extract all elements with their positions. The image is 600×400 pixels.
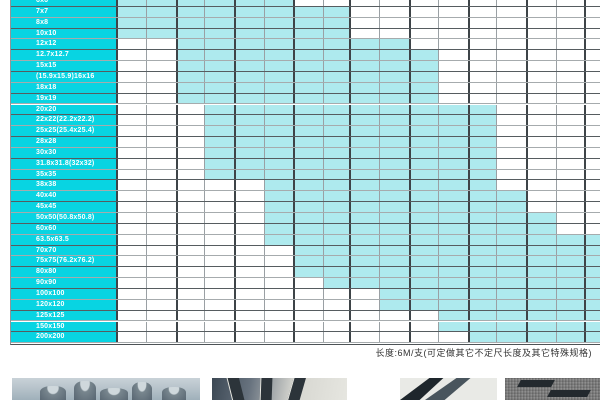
grid-cell (204, 180, 234, 190)
grid-cell (234, 332, 264, 342)
grid-cell (584, 170, 600, 180)
grid-cell (323, 213, 349, 223)
grid-cell (526, 289, 556, 299)
grid-cell (293, 94, 323, 104)
table-row: 100x100 (11, 289, 600, 300)
grid-cell (468, 322, 496, 332)
grid-cell (584, 180, 600, 190)
grid-cell (234, 137, 264, 147)
table-row: 7x7 (11, 7, 600, 18)
grid-cell (556, 246, 584, 256)
grid-cell (349, 105, 379, 115)
grid-cell (438, 322, 468, 332)
grid-cell (264, 170, 293, 180)
grid-cell (204, 115, 234, 125)
grid-cell (293, 267, 323, 277)
grid-cell (379, 50, 409, 60)
grid-cell (176, 137, 204, 147)
grid-cell (496, 246, 526, 256)
grid-cell (349, 289, 379, 299)
grid-cell (293, 246, 323, 256)
grid-cell (204, 0, 234, 6)
grid-cell (116, 137, 146, 147)
grid-cell (176, 224, 204, 234)
grid-cell (468, 213, 496, 223)
grid-cell (468, 332, 496, 342)
grid-cell (496, 50, 526, 60)
grid-cell (526, 246, 556, 256)
grid-cell (379, 170, 409, 180)
grid-cell (526, 311, 556, 321)
grid-cell (379, 300, 409, 310)
grid-cell (323, 29, 349, 39)
grid-cell (584, 148, 600, 158)
grid-cell (438, 180, 468, 190)
table-row: 150x150 (11, 322, 600, 333)
grid-cell (204, 50, 234, 60)
grid-cell (234, 83, 264, 93)
grid-cell (146, 126, 176, 136)
grid-cell (234, 0, 264, 6)
grid-cell (116, 289, 146, 299)
grid-cell (584, 278, 600, 288)
table-row: 120x120 (11, 300, 600, 311)
grid-cell (116, 7, 146, 17)
grid-cell (176, 235, 204, 245)
grid-cell (556, 235, 584, 245)
grid-cell (409, 126, 438, 136)
grid-cell (468, 278, 496, 288)
grid-cell (438, 126, 468, 136)
grid-cell (293, 18, 323, 28)
grid-cell (349, 224, 379, 234)
grid-cell (176, 0, 204, 6)
grid-cell (264, 311, 293, 321)
grid-cell (204, 61, 234, 71)
grid-cell (438, 311, 468, 321)
grid-cell (556, 7, 584, 17)
grid-cell (409, 50, 438, 60)
grid-cell (584, 105, 600, 115)
row-label: 70x70 (11, 246, 116, 256)
grid-cell (204, 148, 234, 158)
grid-cell (349, 115, 379, 125)
grid-cell (204, 332, 234, 342)
grid-cell (556, 267, 584, 277)
grid-cell (323, 0, 349, 6)
grid-cell (526, 213, 556, 223)
grid-cell (409, 105, 438, 115)
grid-cell (468, 256, 496, 266)
row-label: 90x90 (11, 278, 116, 288)
table-row: 22x22(22.2x22.2) (11, 115, 600, 126)
row-label: 20x20 (11, 105, 116, 115)
grid-cell (584, 332, 600, 342)
grid-cell (379, 322, 409, 332)
grid-cell (438, 191, 468, 201)
table-row: 35x35 (11, 170, 600, 181)
grid-cell (204, 278, 234, 288)
grid-cell (349, 180, 379, 190)
grid-cell (264, 322, 293, 332)
grid-cell (584, 50, 600, 60)
table-row: 18x18 (11, 83, 600, 94)
grid-cell (379, 148, 409, 158)
grid-cell (438, 300, 468, 310)
grid-cell (349, 311, 379, 321)
grid-cell (379, 83, 409, 93)
catalog-page: 6x67x78x810x1012x1212.7x12.715x15(15.9x1… (0, 0, 600, 400)
grid-cell (379, 115, 409, 125)
row-label: 8x8 (11, 18, 116, 28)
table-row: 12x12 (11, 39, 600, 50)
grid-cell (234, 148, 264, 158)
cylinder-shape (40, 386, 66, 400)
grid-cell (323, 94, 349, 104)
grid-cell (146, 191, 176, 201)
grid-cell (323, 332, 349, 342)
grid-cell (323, 278, 349, 288)
grid-cell (293, 322, 323, 332)
grid-cell (293, 191, 323, 201)
grid-cell (409, 83, 438, 93)
grid-cell (146, 61, 176, 71)
grid-cell (584, 29, 600, 39)
grid-cell (468, 159, 496, 169)
grid-cell (204, 18, 234, 28)
table-row: 8x8 (11, 18, 600, 29)
size-table: 6x67x78x810x1012x1212.7x12.715x15(15.9x1… (10, 0, 600, 345)
row-label: 200x200 (11, 332, 116, 342)
row-label: 45x45 (11, 202, 116, 212)
grid-cell (146, 18, 176, 28)
grid-cell (176, 246, 204, 256)
grid-cell (526, 7, 556, 17)
grid-cell (204, 202, 234, 212)
grid-cell (234, 213, 264, 223)
grid-cell (379, 137, 409, 147)
grid-cell (204, 191, 234, 201)
grid-cell (556, 202, 584, 212)
grid-cell (496, 332, 526, 342)
grid-cell (556, 61, 584, 71)
grid-cell (234, 72, 264, 82)
grid-cell (323, 224, 349, 234)
grid-cell (409, 235, 438, 245)
row-label: 12x12 (11, 39, 116, 49)
photo-round-steel-billets (12, 378, 200, 400)
grid-cell (116, 61, 146, 71)
grid-cell (438, 224, 468, 234)
grid-cell (204, 256, 234, 266)
grid-cell (116, 213, 146, 223)
row-label: 125x125 (11, 311, 116, 321)
grid-cell (204, 137, 234, 147)
grid-cell (116, 235, 146, 245)
grid-cell (264, 61, 293, 71)
grid-cell (584, 191, 600, 201)
grid-cell (409, 191, 438, 201)
grid-cell (264, 83, 293, 93)
grid-cell (526, 50, 556, 60)
grid-cell (323, 7, 349, 17)
grid-cell (379, 191, 409, 201)
grid-cell (176, 7, 204, 17)
grid-cell (556, 322, 584, 332)
grid-cell (556, 213, 584, 223)
table-row: 90x90 (11, 278, 600, 289)
grid-cell (234, 267, 264, 277)
photo-angle-steel-profile (400, 378, 497, 400)
grid-cell (116, 224, 146, 234)
grid-cell (204, 300, 234, 310)
grid-cell (556, 29, 584, 39)
grid-cell (438, 29, 468, 39)
grid-cell (584, 61, 600, 71)
grid-cell (264, 148, 293, 158)
grid-cell (438, 213, 468, 223)
table-row: 19x19 (11, 94, 600, 105)
table-row: 40x40 (11, 191, 600, 202)
row-label: 38x38 (11, 180, 116, 190)
grid-cell (234, 105, 264, 115)
grid-cell (468, 224, 496, 234)
table-row: 200x200 (11, 332, 600, 343)
grid-cell (146, 72, 176, 82)
length-note: 长度:6M/支(可定做其它不定尺长度及其它特殊规格) (376, 346, 593, 359)
grid-cell (204, 39, 234, 49)
grid-cell (349, 7, 379, 17)
grid-cell (116, 39, 146, 49)
grid-cell (176, 289, 204, 299)
grid-cell (176, 180, 204, 190)
grid-cell (349, 18, 379, 28)
grid-cell (176, 50, 204, 60)
grid-cell (584, 289, 600, 299)
grid-cell (409, 322, 438, 332)
grid-cell (496, 235, 526, 245)
grid-cell (556, 289, 584, 299)
grid-cell (116, 267, 146, 277)
cylinder-shape (100, 388, 128, 400)
grid-cell (176, 159, 204, 169)
grid-cell (204, 224, 234, 234)
grid-cell (116, 50, 146, 60)
grid-cell (176, 322, 204, 332)
grid-cell (234, 94, 264, 104)
grid-cell (116, 311, 146, 321)
grid-cell (323, 235, 349, 245)
grid-cell (526, 18, 556, 28)
grid-cell (409, 224, 438, 234)
row-label: 150x150 (11, 322, 116, 332)
grid-cell (264, 224, 293, 234)
grid-cell (468, 105, 496, 115)
grid-cell (379, 159, 409, 169)
grid-cell (526, 94, 556, 104)
grid-cell (496, 289, 526, 299)
grid-cell (204, 7, 234, 17)
grid-cell (293, 311, 323, 321)
grid-cell (526, 29, 556, 39)
grid-cell (349, 170, 379, 180)
grid-cell (526, 170, 556, 180)
grid-cell (176, 170, 204, 180)
grid-cell (234, 61, 264, 71)
grid-cell (204, 289, 234, 299)
grid-cell (526, 115, 556, 125)
grid-cell (526, 61, 556, 71)
grid-cell (584, 267, 600, 277)
grid-cell (496, 191, 526, 201)
grid-cell (409, 289, 438, 299)
grid-cell (556, 126, 584, 136)
grid-cell (264, 126, 293, 136)
grid-cell (176, 191, 204, 201)
row-label: 63.5x63.5 (11, 235, 116, 245)
grid-cell (496, 159, 526, 169)
grid-cell (496, 224, 526, 234)
grid-cell (264, 29, 293, 39)
table-row: 38x38 (11, 180, 600, 191)
grid-cell (204, 170, 234, 180)
grid-cell (526, 278, 556, 288)
grid-cell (349, 50, 379, 60)
grid-cell (293, 39, 323, 49)
grid-cell (526, 300, 556, 310)
grid-cell (349, 322, 379, 332)
grid-cell (379, 7, 409, 17)
grid-cell (379, 180, 409, 190)
grid-cell (468, 126, 496, 136)
grid-cell (496, 256, 526, 266)
grid-cell (264, 278, 293, 288)
grid-cell (176, 72, 204, 82)
grid-cell (379, 126, 409, 136)
grid-cell (323, 126, 349, 136)
grid-cell (264, 0, 293, 6)
grid-cell (146, 105, 176, 115)
grid-cell (409, 0, 438, 6)
grid-cell (526, 224, 556, 234)
grid-cell (204, 94, 234, 104)
grid-cell (146, 278, 176, 288)
table-row: 75x75(76.2x76.2) (11, 256, 600, 267)
grid-cell (349, 246, 379, 256)
grid-cell (146, 83, 176, 93)
grid-cell (204, 126, 234, 136)
grid-cell (323, 115, 349, 125)
grid-cell (264, 332, 293, 342)
grid-cell (116, 72, 146, 82)
grid-cell (468, 72, 496, 82)
grid-cell (526, 235, 556, 245)
grid-cell (349, 278, 379, 288)
table-row: 50x50(50.8x50.8) (11, 213, 600, 224)
grid-cell (468, 180, 496, 190)
grid-cell (379, 278, 409, 288)
grid-cell (146, 137, 176, 147)
grid-cell (584, 18, 600, 28)
grid-cell (264, 115, 293, 125)
grid-cell (146, 300, 176, 310)
grid-cell (379, 311, 409, 321)
grid-cell (204, 235, 234, 245)
grid-cell (116, 159, 146, 169)
grid-cell (234, 278, 264, 288)
row-label: (15.9x15.9)16x16 (11, 72, 116, 82)
grid-cell (176, 267, 204, 277)
grid-cell (468, 50, 496, 60)
grid-cell (556, 94, 584, 104)
grid-cell (349, 256, 379, 266)
grid-cell (584, 224, 600, 234)
row-label: 50x50(50.8x50.8) (11, 213, 116, 223)
grid-cell (468, 191, 496, 201)
grid-cell (496, 213, 526, 223)
grid-cell (293, 300, 323, 310)
grid-cell (293, 278, 323, 288)
grid-cell (264, 256, 293, 266)
grid-cell (526, 322, 556, 332)
grid-cell (409, 148, 438, 158)
grid-cell (438, 267, 468, 277)
grid-cell (116, 170, 146, 180)
grid-cell (468, 18, 496, 28)
grid-cell (146, 267, 176, 277)
grid-cell (556, 332, 584, 342)
cylinder-shape (162, 387, 186, 400)
grid-cell (584, 115, 600, 125)
table-row: 6x6 (11, 0, 600, 7)
grid-cell (234, 322, 264, 332)
grid-cell (468, 61, 496, 71)
grid-cell (116, 278, 146, 288)
grid-cell (438, 7, 468, 17)
table-row: 12.7x12.7 (11, 50, 600, 61)
grid-cell (116, 180, 146, 190)
grid-cell (496, 72, 526, 82)
table-row: 20x20 (11, 105, 600, 116)
row-label: 80x80 (11, 267, 116, 277)
grid-cell (323, 256, 349, 266)
grid-cell (176, 126, 204, 136)
grid-cell (264, 191, 293, 201)
grid-cell (409, 256, 438, 266)
grid-cell (556, 83, 584, 93)
photo-flat-steel-bars (212, 378, 347, 400)
grid-cell (293, 72, 323, 82)
row-label: 120x120 (11, 300, 116, 310)
grid-cell (176, 332, 204, 342)
grid-cell (293, 148, 323, 158)
grid-cell (556, 311, 584, 321)
grid-cell (438, 202, 468, 212)
grid-cell (293, 202, 323, 212)
grid-cell (496, 148, 526, 158)
row-label: 18x18 (11, 83, 116, 93)
grid-cell (379, 332, 409, 342)
grid-cell (584, 0, 600, 6)
grid-cell (146, 7, 176, 17)
grid-cell (323, 159, 349, 169)
grid-cell (349, 267, 379, 277)
grid-cell (293, 7, 323, 17)
grid-cell (409, 18, 438, 28)
grid-cell (409, 7, 438, 17)
grid-cell (379, 105, 409, 115)
table-row: 30x30 (11, 148, 600, 159)
